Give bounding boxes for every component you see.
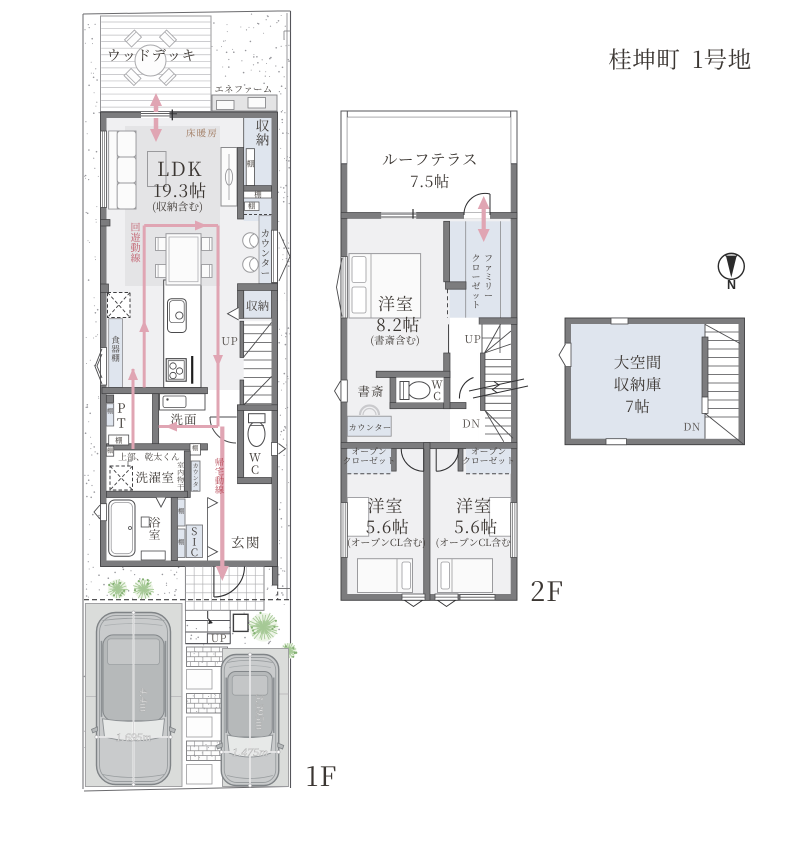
- svg-text:4.4m: 4.4m: [137, 688, 151, 712]
- svg-text:N: N: [727, 278, 736, 292]
- svg-text:1.695m: 1.695m: [116, 730, 152, 744]
- svg-text:3.395m: 3.395m: [253, 693, 267, 730]
- svg-text:1.475m: 1.475m: [232, 745, 268, 759]
